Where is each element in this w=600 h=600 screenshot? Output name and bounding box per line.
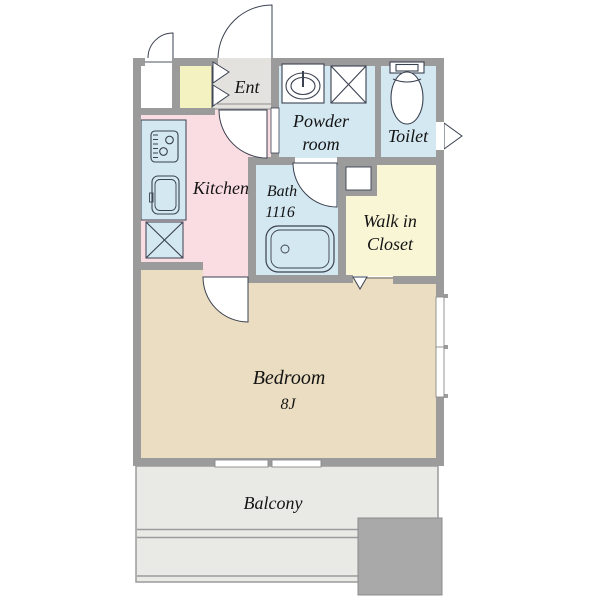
- label-toilet: Toilet: [388, 126, 429, 146]
- wall-kitchen-bedroom: [133, 262, 203, 270]
- label-bath-line1: Bath: [267, 183, 297, 200]
- label-entrance: Ent: [234, 77, 261, 97]
- wall-recess-divider: [172, 58, 180, 110]
- wall-kitchen-bath: [248, 157, 256, 283]
- label-wic-line1: Walk in: [363, 211, 417, 231]
- wall-right-b: [436, 150, 444, 297]
- floor-plan-page: Ent Powder room Toilet Kitchen Bath 1116…: [0, 0, 600, 600]
- balcony-corner-block: [358, 518, 442, 595]
- floor-plan: Ent Powder room Toilet Kitchen Bath 1116…: [0, 0, 600, 600]
- toilet-door-swing: [444, 123, 462, 149]
- storage-recess: [139, 62, 173, 110]
- balcony: [136, 466, 442, 595]
- wall-bath-wic: [338, 165, 346, 283]
- wall-ent-powder: [271, 58, 279, 108]
- shoe-closet: [178, 62, 212, 110]
- label-wic-line2: Closet: [367, 234, 414, 254]
- storage-door-arc: [148, 33, 173, 58]
- label-balcony: Balcony: [244, 493, 303, 513]
- label-powder-line1: Powder: [292, 111, 350, 131]
- wall-under-bath: [248, 275, 353, 283]
- wall-under-wic: [393, 276, 436, 284]
- label-bath-line2: 1116: [265, 204, 295, 221]
- bedroom-floor: [141, 270, 436, 458]
- balcony-window-left: [215, 460, 268, 467]
- wall-right-a: [436, 58, 444, 122]
- balcony-window-right: [272, 460, 321, 467]
- powder-room-doorway: [271, 108, 279, 153]
- label-bedroom-line1: Bedroom: [253, 367, 326, 389]
- wall-below-entry-closets: [133, 108, 215, 115]
- wall-right-c: [436, 397, 444, 466]
- toilet-doorway-gap: [436, 122, 444, 150]
- label-bedroom-line2: 8J: [280, 396, 296, 413]
- pipe-space-box: [346, 167, 371, 190]
- label-powder-line2: room: [302, 134, 339, 154]
- entrance-door-arc: [218, 5, 272, 58]
- label-kitchen: Kitchen: [192, 178, 249, 198]
- wall-powder-toilet: [375, 58, 381, 165]
